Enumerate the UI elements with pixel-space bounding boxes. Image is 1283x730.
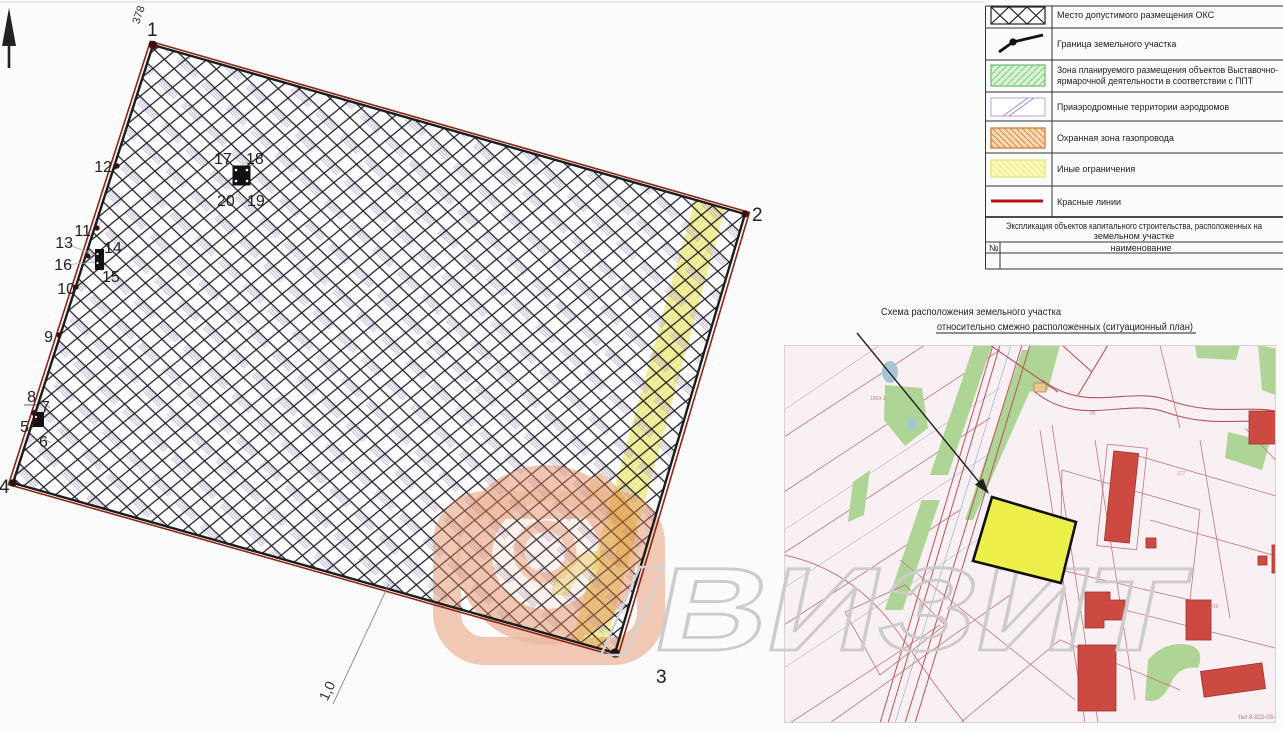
svg-text:6: 6 <box>39 434 48 451</box>
svg-text:19: 19 <box>247 193 265 210</box>
svg-text:1: 1 <box>147 20 158 41</box>
svg-text:10: 10 <box>57 281 75 298</box>
svg-text:12: 12 <box>94 159 112 176</box>
svg-text:2: 2 <box>752 205 763 226</box>
svg-text:земельном участке: земельном участке <box>1094 231 1174 241</box>
svg-text:8: 8 <box>27 389 36 406</box>
svg-text:18: 18 <box>246 151 264 168</box>
svg-text:Приаэродромные территории аэро: Приаэродромные территории аэродромов <box>1057 102 1229 112</box>
svg-text:Место допустимого размещения О: Место допустимого размещения ОКС <box>1057 10 1215 20</box>
svg-text:5: 5 <box>20 419 29 436</box>
svg-text:16: 16 <box>54 257 72 274</box>
svg-text:Иные ограничения: Иные ограничения <box>1057 164 1135 174</box>
svg-text:Схема расположения земельного: Схема расположения земельного участка <box>881 306 1061 318</box>
svg-text:ярмарочной деятельности в соот: ярмарочной деятельности в соответствии с… <box>1057 76 1253 86</box>
svg-text:17: 17 <box>214 151 232 168</box>
svg-text:относительно смежно расположен: относительно смежно расположенных (ситуа… <box>937 321 1193 333</box>
svg-text:ВИЗИТ: ВИЗИТ <box>643 544 1198 676</box>
svg-text:Охранная зона газопровода: Охранная зона газопровода <box>1057 133 1174 143</box>
svg-text:4: 4 <box>0 477 10 498</box>
svg-text:Граница земельного участка: Граница земельного участка <box>1057 39 1176 49</box>
svg-text:Зона планируемого размещения о: Зона планируемого размещения объектов Вы… <box>1057 65 1278 75</box>
svg-text:9: 9 <box>44 329 53 346</box>
svg-text:7: 7 <box>41 399 50 416</box>
svg-text:Красные линии: Красные линии <box>1057 197 1121 207</box>
svg-text:№: № <box>989 243 999 253</box>
svg-text:наименование: наименование <box>1111 243 1172 253</box>
svg-text:177: 177 <box>1177 471 1186 477</box>
svg-text:219: 219 <box>1210 604 1219 610</box>
svg-text:05: 05 <box>1090 411 1096 417</box>
svg-text:11: 11 <box>74 223 91 240</box>
svg-text:13: 13 <box>55 235 73 252</box>
svg-text:20: 20 <box>217 193 235 210</box>
svg-text:1869-1: 1869-1 <box>870 396 886 402</box>
svg-text:14: 14 <box>104 240 122 257</box>
svg-text:15: 15 <box>102 269 120 286</box>
svg-text:Экспликация объектов капитальн: Экспликация объектов капитального строит… <box>1006 221 1262 231</box>
